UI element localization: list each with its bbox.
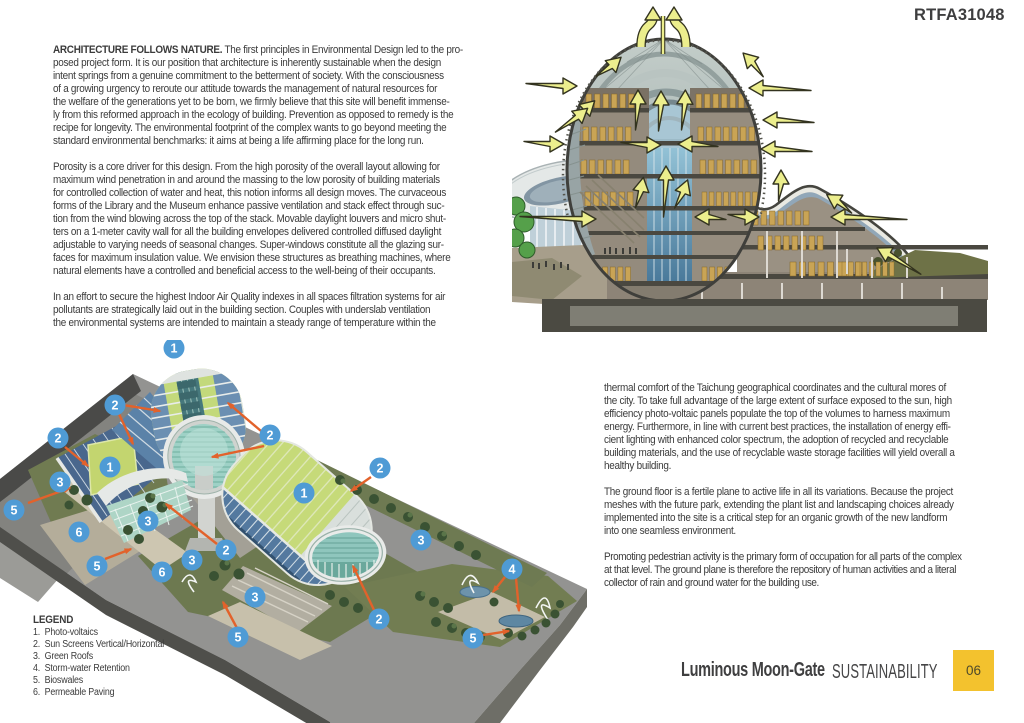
svg-text:5: 5: [235, 631, 242, 645]
svg-text:3: 3: [252, 591, 259, 605]
svg-text:4: 4: [509, 563, 516, 577]
svg-text:2: 2: [112, 399, 119, 413]
svg-text:1: 1: [301, 487, 308, 501]
svg-text:5: 5: [94, 560, 101, 574]
svg-text:3: 3: [418, 534, 425, 548]
svg-text:5: 5: [11, 504, 18, 518]
svg-text:2: 2: [267, 429, 274, 443]
svg-text:1: 1: [171, 342, 178, 356]
svg-text:3: 3: [57, 476, 64, 490]
svg-text:2: 2: [223, 544, 230, 558]
svg-text:2: 2: [376, 613, 383, 627]
svg-text:1: 1: [107, 461, 114, 475]
svg-text:2: 2: [377, 462, 384, 476]
svg-text:2: 2: [55, 432, 62, 446]
svg-text:6: 6: [159, 566, 166, 580]
svg-text:5: 5: [470, 632, 477, 646]
svg-text:3: 3: [145, 515, 152, 529]
svg-text:3: 3: [189, 554, 196, 568]
svg-text:6: 6: [76, 526, 83, 540]
